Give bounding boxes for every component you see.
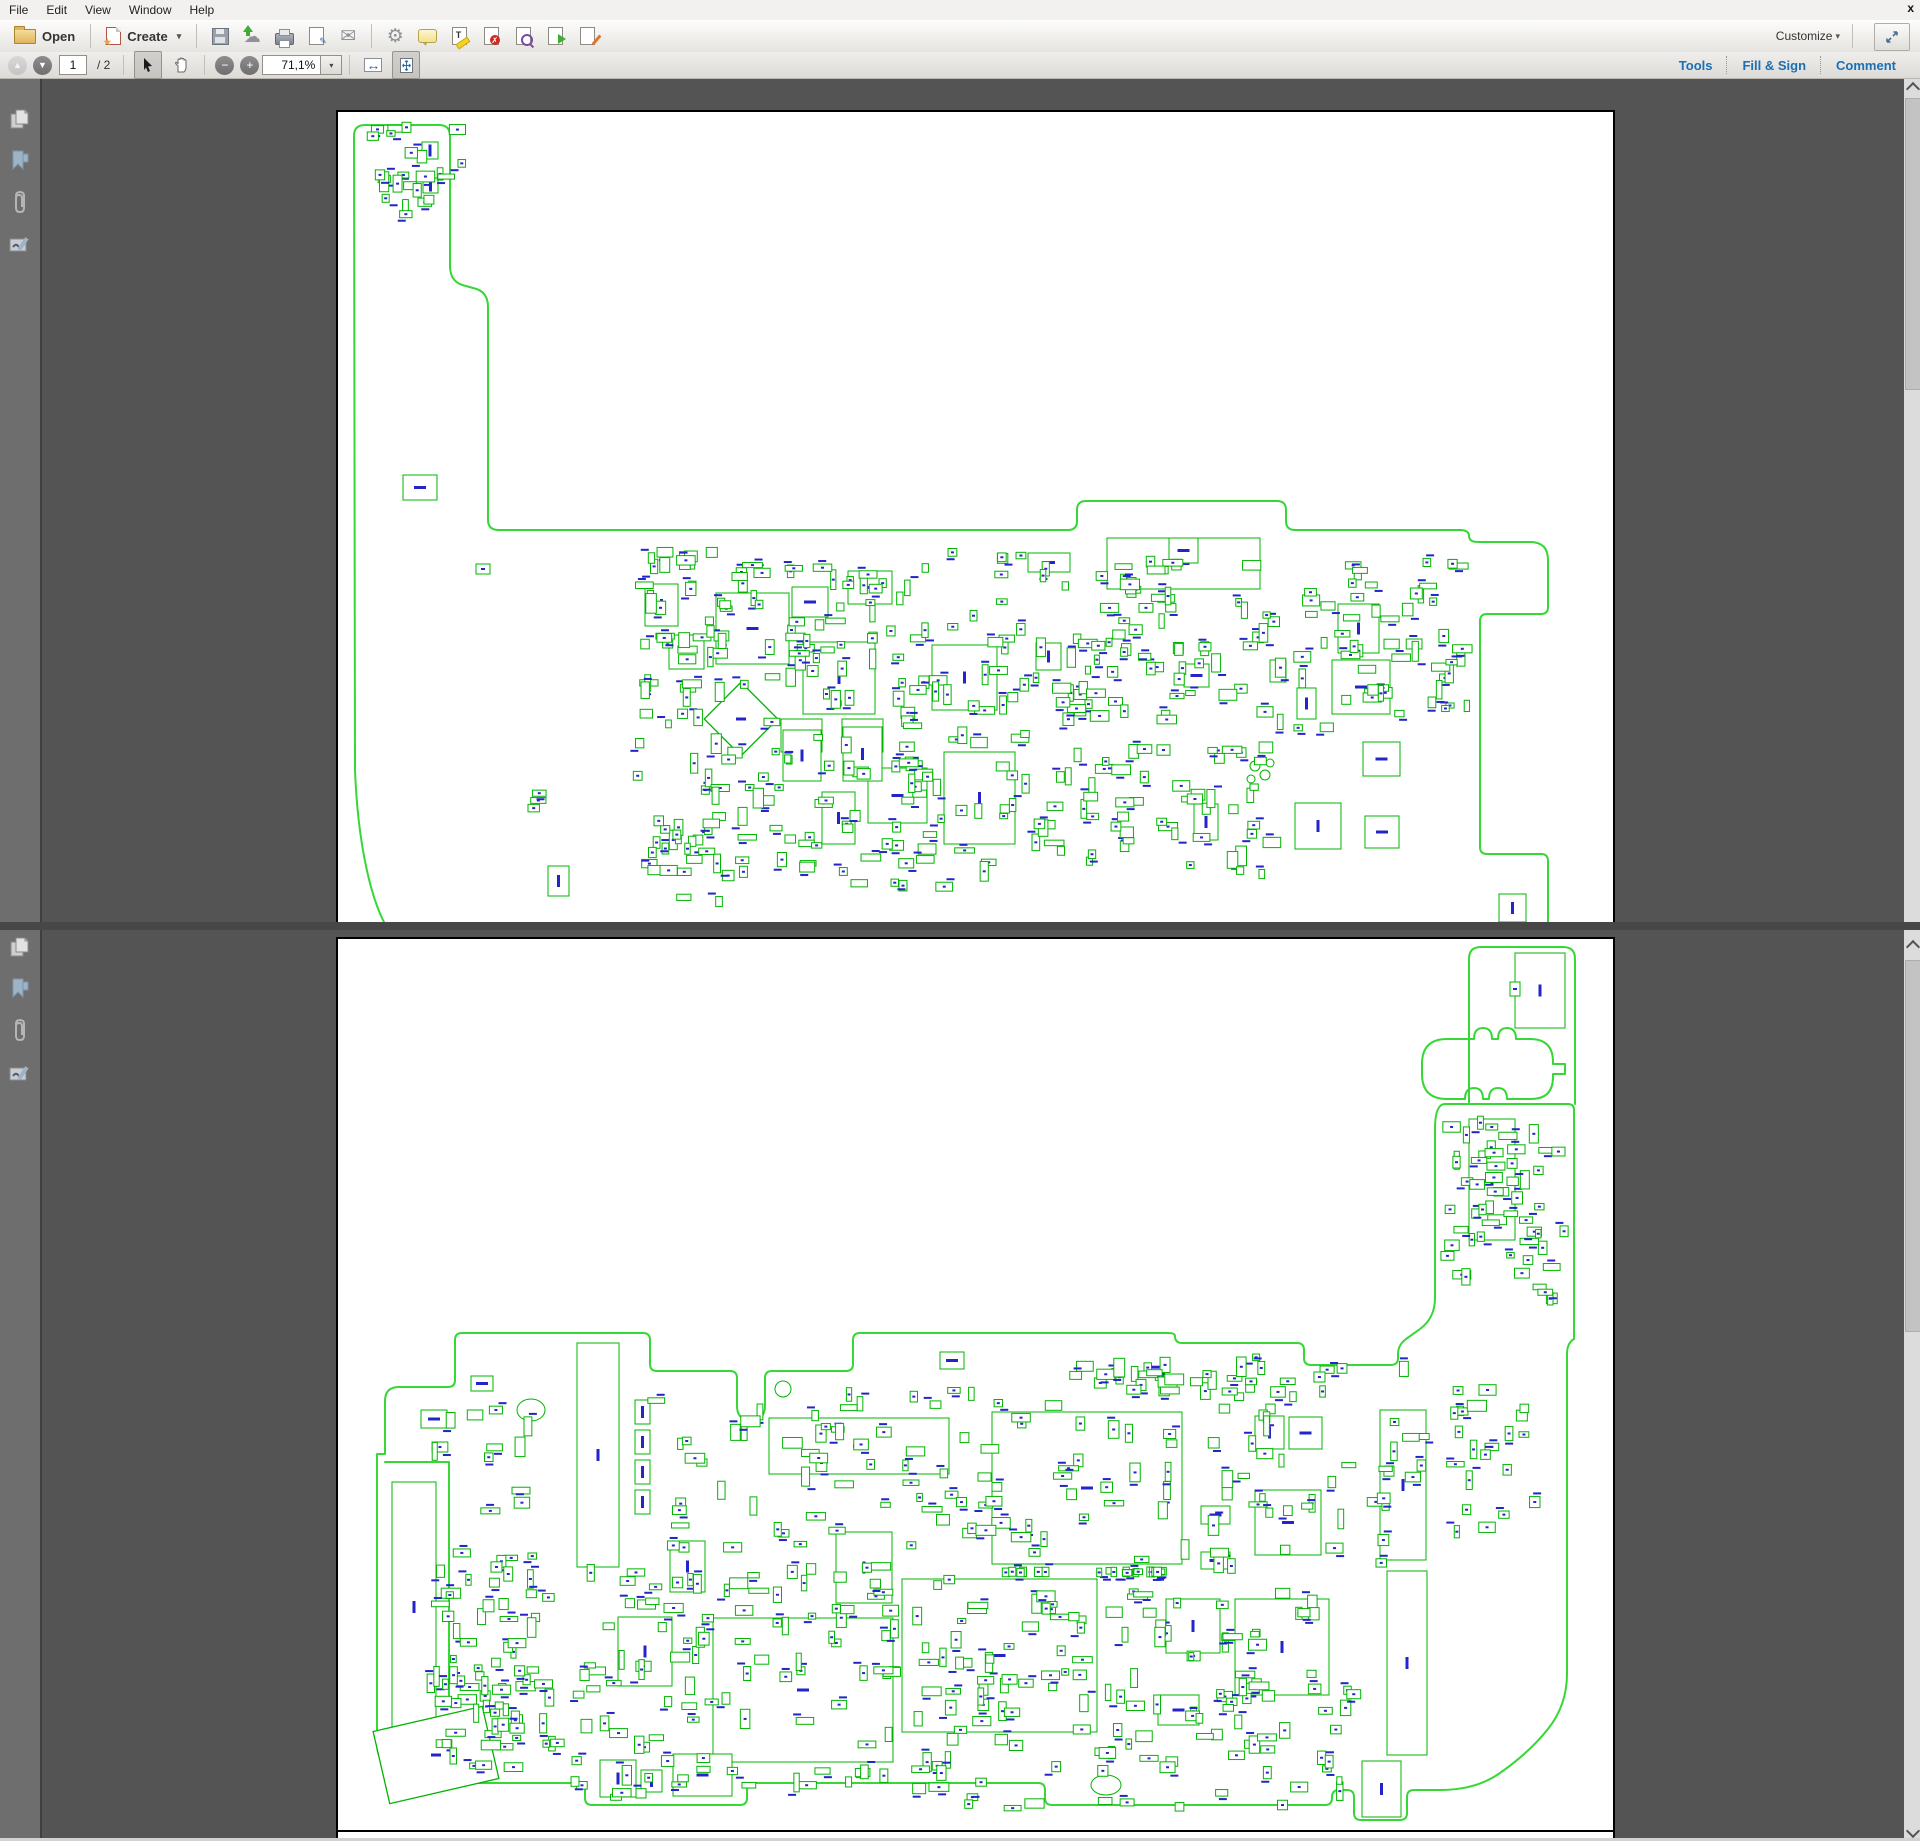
pdf-export-button[interactable]: [542, 23, 568, 49]
expand-window-icon: [1885, 30, 1899, 44]
screenshot-stitch-band: [0, 922, 1920, 930]
toggle-reading-mode-button[interactable]: [1874, 23, 1910, 51]
save-button[interactable]: [207, 23, 233, 49]
pdf-delete-icon: ✗: [484, 27, 499, 45]
zoom-dropdown-caret-icon: ▾: [329, 61, 333, 70]
highlight-tool-button[interactable]: T: [446, 23, 472, 49]
next-page-icon: ▼: [38, 60, 47, 70]
close-window-button[interactable]: x: [1907, 1, 1914, 15]
navigation-toolbar: ▲ ▼ 1 / 2 − + 71,1% ▾ ↔ Tools Fill & Sig…: [0, 52, 1920, 79]
bookmarks-icon[interactable]: [8, 976, 32, 1000]
select-cursor-icon: [141, 57, 155, 73]
open-button[interactable]: Open: [6, 26, 83, 47]
zoom-dropdown-button[interactable]: ▾: [321, 55, 342, 75]
pcb-drawing-page-1: [338, 112, 1613, 922]
attachments-icon[interactable]: [8, 1018, 32, 1042]
main-toolbar: Open ★ Create ▾ ☁ ✎ ✉ ⚙ T ✗ Custom: [0, 20, 1920, 53]
hand-tool-icon: [174, 57, 189, 73]
create-caret-icon: ▾: [177, 31, 182, 42]
task-pane-tabs: Tools Fill & Sign Comment: [1665, 52, 1910, 78]
scrollbar-thumb[interactable]: [1905, 98, 1920, 390]
sign-document-icon: ✎: [309, 27, 324, 45]
menu-view[interactable]: View: [76, 1, 120, 19]
print-button[interactable]: [271, 23, 297, 49]
scroll-up-icon[interactable]: [1906, 82, 1920, 96]
create-button-label: Create: [127, 29, 167, 44]
toolbar-separator: [196, 24, 197, 48]
toolbar-separator: [204, 55, 205, 75]
signature-icon[interactable]: [8, 233, 32, 257]
save-icon: [212, 28, 229, 45]
tab-comment[interactable]: Comment: [1822, 58, 1910, 73]
open-folder-icon: [14, 29, 36, 44]
sign-button[interactable]: ✎: [303, 23, 329, 49]
menu-bar: File Edit View Window Help x: [0, 0, 1920, 20]
email-button[interactable]: ✉: [335, 23, 361, 49]
customize-button[interactable]: Customize ▾: [1776, 20, 1860, 52]
create-button[interactable]: ★ Create ▾: [98, 24, 189, 48]
toolbar-separator: [90, 24, 91, 48]
comment-bubble-icon: [418, 29, 437, 43]
fit-page-icon: [399, 57, 414, 74]
page-thumbnails-icon[interactable]: [8, 107, 32, 131]
scrollbar-thumb[interactable]: [1905, 960, 1920, 1332]
scroll-up-icon[interactable]: [1906, 940, 1920, 954]
document-view-bottom: [0, 930, 1920, 1841]
document-view-top: [0, 78, 1920, 922]
toolbar-separator: [1852, 24, 1853, 48]
zoom-in-icon: +: [246, 58, 253, 72]
navigation-pane-sidebar: [0, 930, 42, 1841]
fit-one-page-button[interactable]: [392, 51, 420, 79]
toolbar-separator: [123, 55, 124, 75]
customize-caret-icon: ▾: [1835, 31, 1840, 42]
bookmarks-icon[interactable]: [8, 148, 32, 172]
page-thumbnails-icon[interactable]: [8, 935, 32, 959]
create-pdf-icon: ★: [106, 27, 121, 45]
page-total-label: / 2: [97, 58, 110, 72]
fit-width-icon: ↔: [364, 58, 382, 72]
board-components: [367, 122, 1526, 922]
email-icon: ✉: [340, 27, 356, 46]
menu-edit[interactable]: Edit: [37, 1, 76, 19]
zoom-in-button[interactable]: +: [240, 56, 259, 75]
preferences-button[interactable]: ⚙: [382, 23, 408, 49]
pcb-drawing-page-2: [338, 939, 1609, 1838]
pdf-search-button[interactable]: [510, 23, 536, 49]
customize-label: Customize: [1776, 29, 1833, 43]
gear-icon: ⚙: [387, 27, 404, 46]
previous-page-button[interactable]: ▲: [8, 56, 27, 75]
pdf-delete-button[interactable]: ✗: [478, 23, 504, 49]
attachments-icon[interactable]: [8, 190, 32, 214]
vertical-scrollbar-bottom[interactable]: [1904, 930, 1920, 1841]
comment-tool-button[interactable]: [414, 23, 440, 49]
next-page-button[interactable]: ▼: [33, 56, 52, 75]
pdf-edit-icon: [580, 27, 595, 45]
zoom-out-icon: −: [221, 58, 228, 72]
page-bottom-border: [338, 1830, 1613, 1832]
pdf-edit-button[interactable]: [574, 23, 600, 49]
zoom-level-input[interactable]: 71,1%: [262, 55, 321, 75]
share-button[interactable]: ☁: [239, 23, 265, 49]
signature-icon[interactable]: [8, 1062, 32, 1086]
tab-fill-and-sign[interactable]: Fill & Sign: [1728, 58, 1820, 73]
pdf-page-2[interactable]: [336, 937, 1615, 1840]
select-tool-button[interactable]: [134, 51, 162, 79]
zoom-out-button[interactable]: −: [215, 56, 234, 75]
hand-tool-button[interactable]: [168, 52, 194, 78]
toolbar-separator: [371, 24, 372, 48]
board-components: [373, 953, 1568, 1817]
page-number-input[interactable]: 1: [59, 55, 87, 75]
scrolling-mode-button[interactable]: ↔: [360, 52, 386, 78]
open-button-label: Open: [42, 29, 75, 44]
pdf-export-icon: [548, 27, 563, 45]
navigation-pane-sidebar: [0, 78, 42, 922]
menu-file[interactable]: File: [0, 1, 37, 19]
previous-page-icon: ▲: [13, 60, 22, 70]
scroll-down-icon[interactable]: [1906, 1824, 1920, 1838]
highlight-text-icon: T: [452, 27, 467, 45]
pdf-search-icon: [516, 27, 531, 45]
pdf-page-1[interactable]: [336, 110, 1615, 924]
tab-tools[interactable]: Tools: [1665, 58, 1727, 73]
menu-help[interactable]: Help: [181, 1, 224, 19]
vertical-scrollbar-top[interactable]: [1904, 78, 1920, 922]
menu-window[interactable]: Window: [120, 1, 181, 19]
toolbar-separator: [349, 55, 350, 75]
print-icon: [275, 33, 294, 45]
